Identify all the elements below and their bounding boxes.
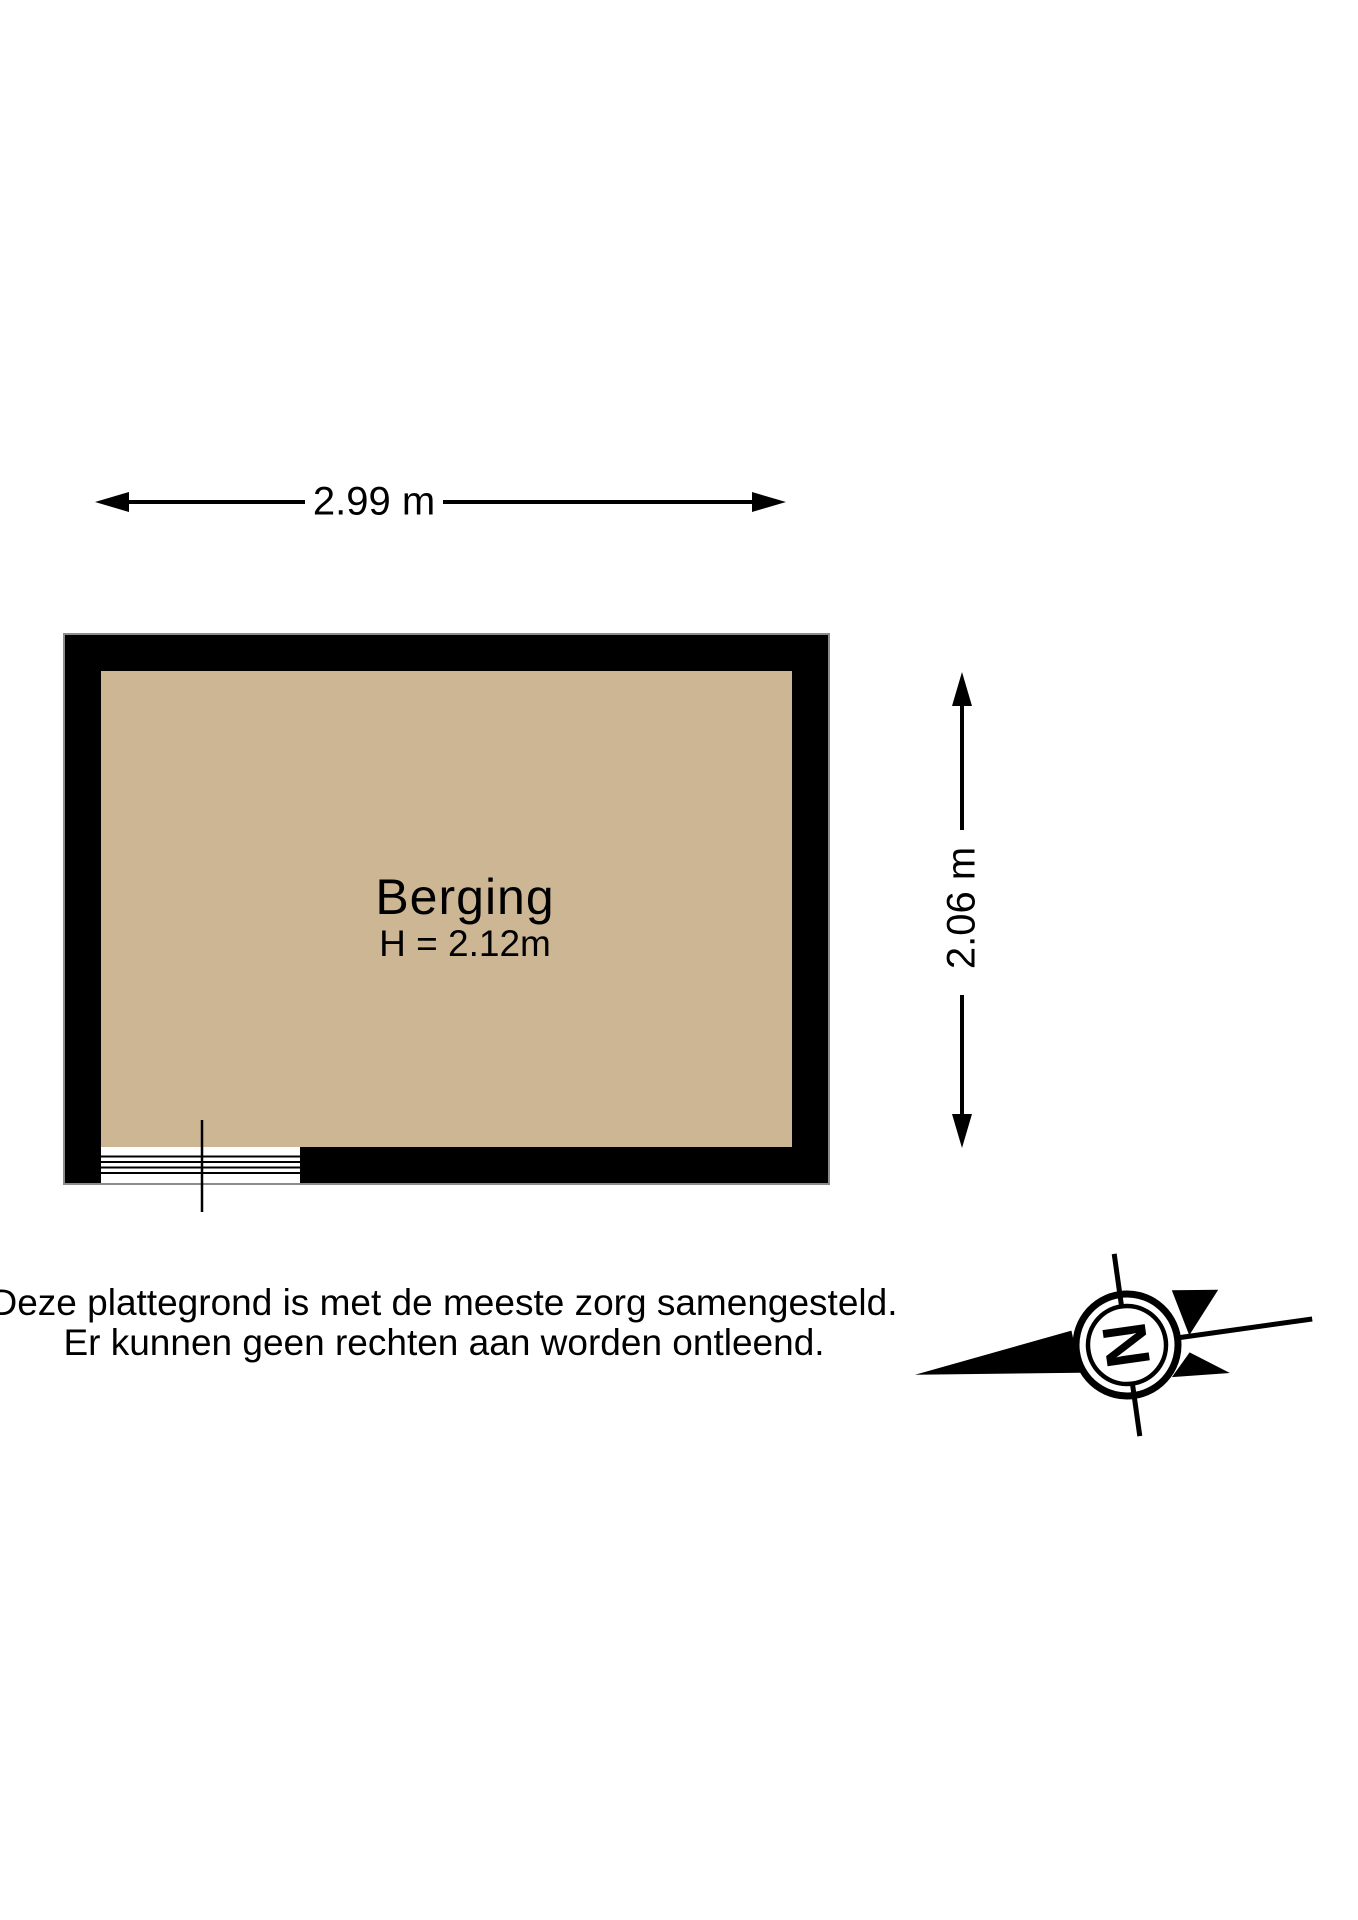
dimension-width-label: 2.99 m: [313, 480, 435, 525]
compass-north-arrow: N: [902, 1228, 1325, 1466]
room-ceiling-height: H = 2.12m: [375, 924, 554, 964]
floorplan-canvas: N 2.99 m 2.06 m Berging H = 2.12m Deze p…: [0, 0, 1358, 1920]
arrowhead-down-icon: [952, 1114, 972, 1148]
room-label: Berging H = 2.12m: [375, 870, 554, 964]
compass-outer-circle: [1069, 1287, 1184, 1402]
room-name: Berging: [375, 870, 554, 924]
disclaimer-line-2: Er kunnen geen rechten aan worden ontlee…: [0, 1323, 898, 1363]
arrowhead-up-icon: [952, 672, 972, 706]
compass-axis-line-top: [1114, 1254, 1121, 1306]
dimension-width-arrow: [95, 492, 786, 512]
disclaimer-line-1: Deze plattegrond is met de meeste zorg s…: [0, 1283, 898, 1323]
dimension-height-label: 2.06 m: [940, 847, 985, 969]
compass-north-letter: N: [1090, 1318, 1165, 1372]
compass-axis-line-bottom: [1132, 1384, 1139, 1436]
compass-inner-circle: [1083, 1301, 1171, 1389]
arrowhead-left-icon: [95, 492, 129, 512]
arrowhead-right-icon: [752, 492, 786, 512]
compass-lower-wedge-icon: [1169, 1347, 1230, 1381]
compass-tail-line: [1179, 1319, 1312, 1338]
disclaimer: Deze plattegrond is met de meeste zorg s…: [0, 1283, 898, 1363]
door-opening: [101, 1147, 300, 1183]
compass-north-pointer-icon: [912, 1330, 1080, 1395]
compass-upper-wedge-icon: [1172, 1284, 1224, 1337]
